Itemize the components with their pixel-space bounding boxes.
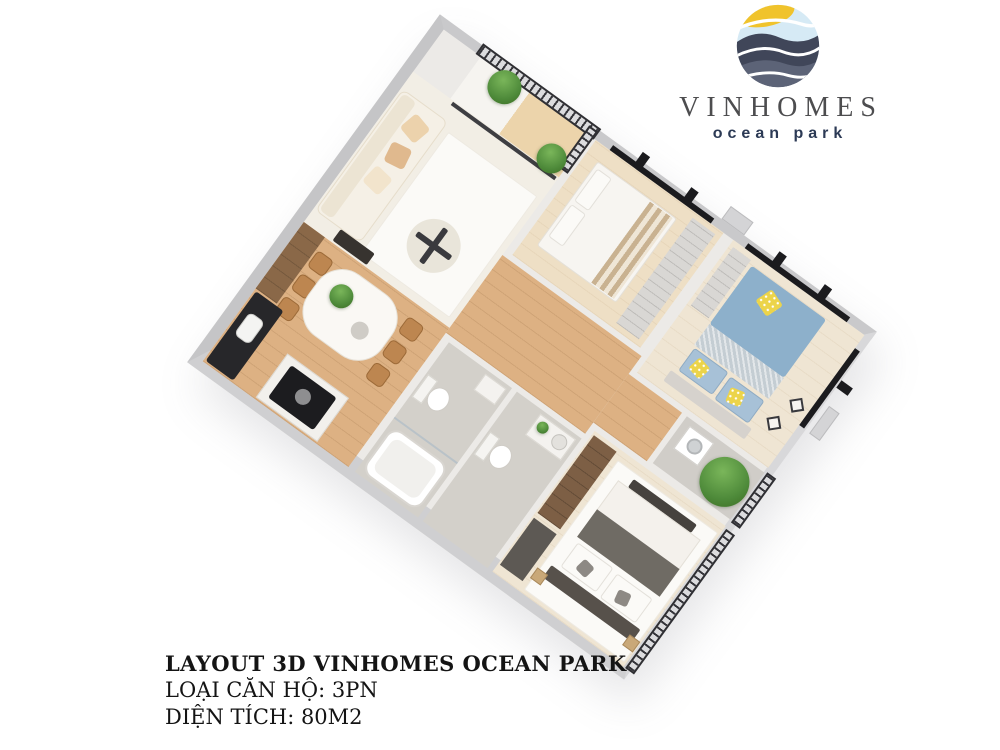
page: VINHOMES ocean park <box>0 0 1000 750</box>
logo-wordmark: VINHOMES <box>655 92 900 124</box>
bedroom1-window-stub-1 <box>770 251 787 269</box>
caption-apartment-type: LOẠI CĂN HỘ: 3PN <box>165 677 627 704</box>
wall-art-2 <box>789 398 804 413</box>
ac-unit-top <box>721 206 753 235</box>
caption-block: LAYOUT 3D VINHOMES OCEAN PARK LOẠI CĂN H… <box>165 650 627 731</box>
caption-title: LAYOUT 3D VINHOMES OCEAN PARK <box>165 650 627 677</box>
vinhomes-logo: VINHOMES ocean park <box>655 4 900 143</box>
caption-area: DIỆN TÍCH: 80M2 <box>165 704 627 731</box>
logo-subtitle: ocean park <box>655 125 900 143</box>
vinhomes-sun-wave-icon <box>736 4 820 88</box>
bedroom1-side-window-stub <box>836 380 853 396</box>
wall-art-1 <box>766 416 781 431</box>
washer-door <box>683 435 705 457</box>
